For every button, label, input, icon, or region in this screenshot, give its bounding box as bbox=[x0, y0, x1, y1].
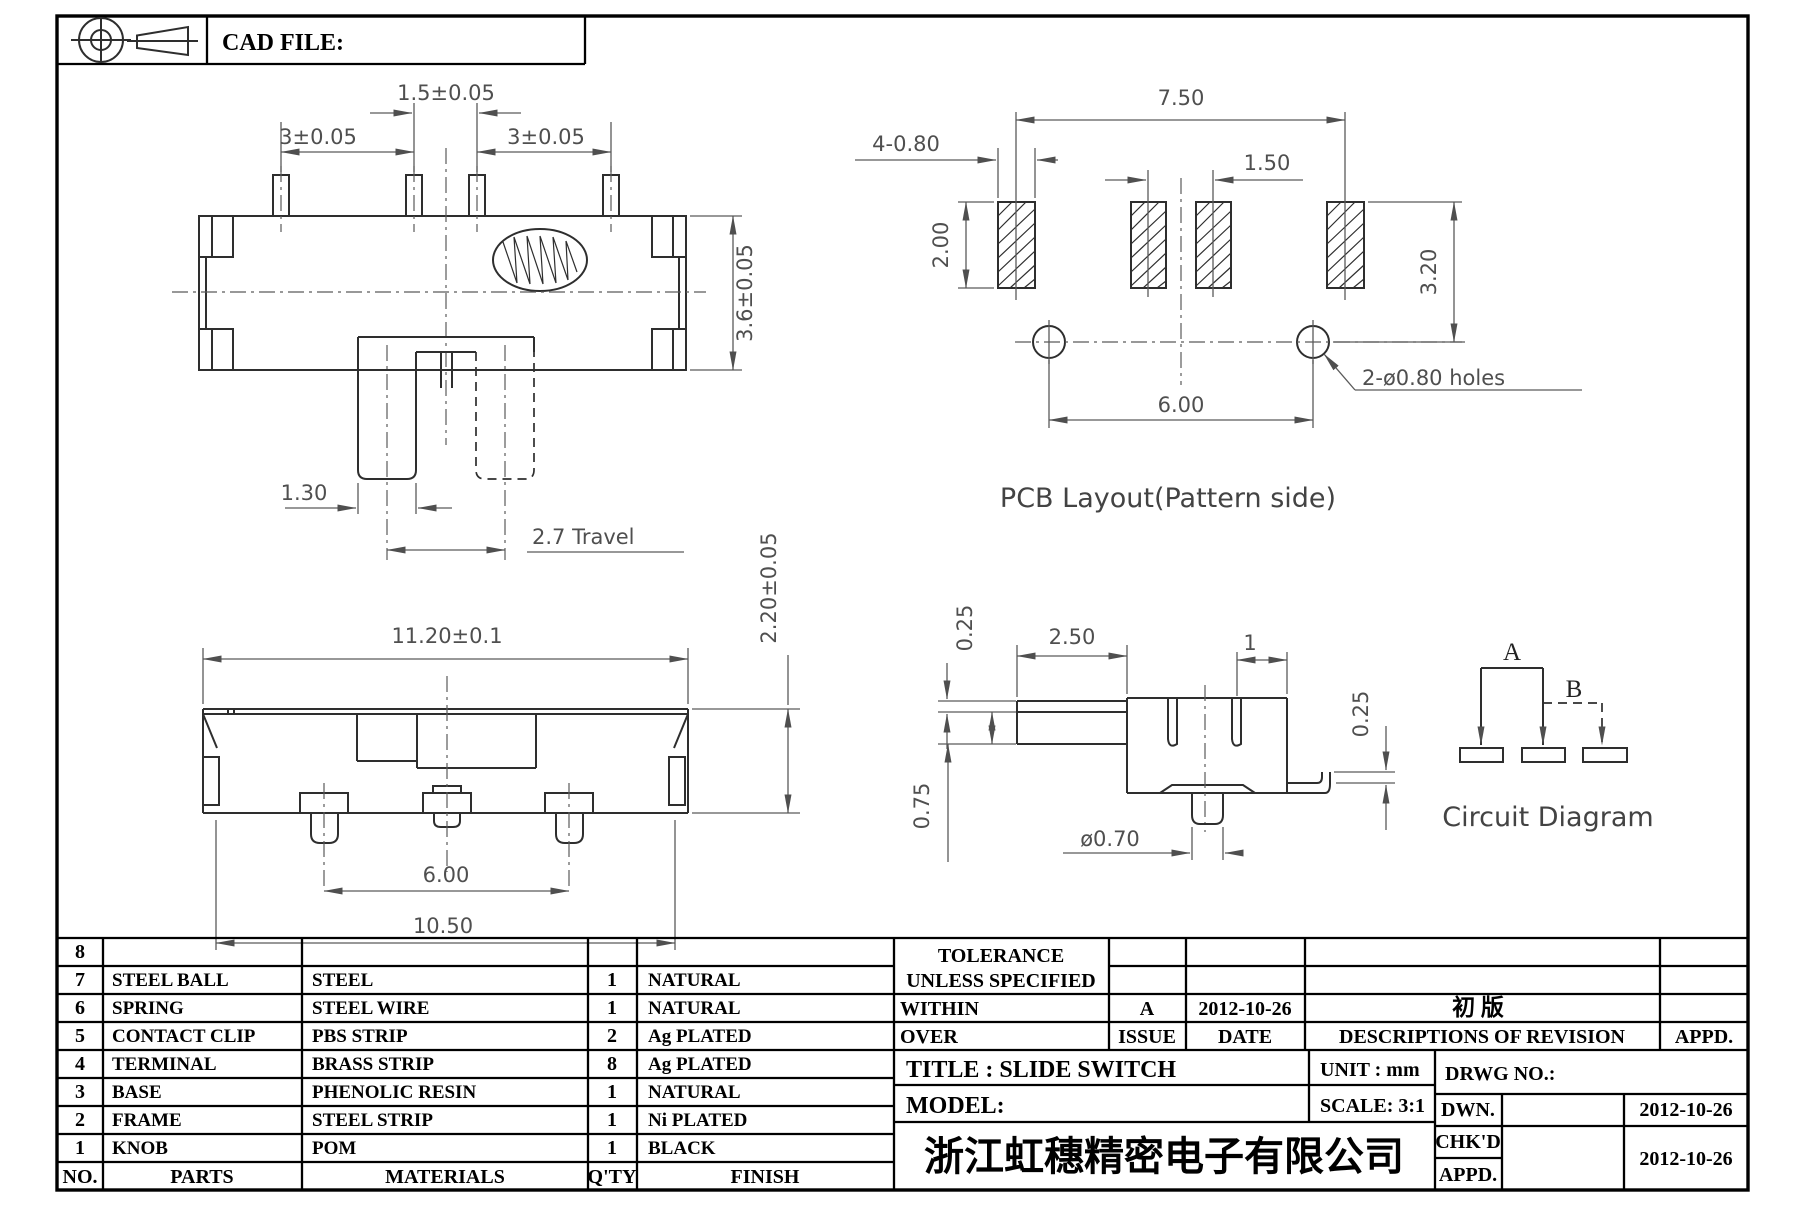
part-material: STEEL WIRE bbox=[312, 998, 429, 1019]
front-view: 11.20±0.1 6.00 10.50 2.20±0.05 bbox=[203, 532, 800, 950]
dim-base-width: 10.50 bbox=[413, 914, 473, 938]
circuit-diagram: A B Circuit Diagram bbox=[1442, 639, 1653, 833]
dim-pin-diameter: ø0.70 bbox=[1080, 827, 1140, 851]
part-name: TERMINAL bbox=[112, 1054, 217, 1075]
dim-holes-note: 2-ø0.80 holes bbox=[1362, 366, 1505, 390]
appd2-label: APPD. bbox=[1439, 1164, 1497, 1186]
part-qty: 1 bbox=[607, 1109, 617, 1131]
dim-pad-height: 2.00 bbox=[929, 222, 953, 269]
part-name: STEEL BALL bbox=[112, 970, 229, 991]
part-finish: NATURAL bbox=[648, 998, 741, 1019]
dim-arm-length: 2.50 bbox=[1049, 625, 1096, 649]
pcb-dimensions: 7.50 1.50 4-0.80 2.00 3.20 6.00 bbox=[855, 86, 1582, 428]
dim-tip-height: 0.25 bbox=[1349, 691, 1373, 738]
model-label: MODEL: bbox=[906, 1093, 1005, 1119]
dim-body-height: 3.6±0.05 bbox=[733, 244, 757, 342]
dim-arm-height: 0.75 bbox=[910, 783, 934, 830]
chkd-label: CHK'D bbox=[1435, 1131, 1501, 1153]
part-qty: 1 bbox=[607, 1081, 617, 1103]
date-label: DATE bbox=[1218, 1026, 1272, 1048]
part-qty: 1 bbox=[607, 1137, 617, 1159]
part-material: PHENOLIC RESIN bbox=[312, 1082, 476, 1103]
side-detail-dimensions: 0.25 0.75 2.50 1 0.25 ø0.70 bbox=[910, 605, 1395, 862]
pcb-view-title: PCB Layout(Pattern side) bbox=[1000, 483, 1336, 514]
over-label: OVER bbox=[900, 1026, 958, 1048]
dim-slot-offset: 1 bbox=[1243, 631, 1256, 655]
part-no: 6 bbox=[75, 997, 85, 1019]
part-qty: 1 bbox=[607, 997, 617, 1019]
drawing-sheet: CAD FILE: bbox=[0, 0, 1811, 1207]
part-name: FRAME bbox=[112, 1110, 182, 1131]
part-finish: Ni PLATED bbox=[648, 1110, 747, 1131]
part-material: BRASS STRIP bbox=[312, 1054, 434, 1075]
drawing-title: TITLE : SLIDE SWITCH bbox=[906, 1057, 1176, 1083]
dim-pin-pitch-right: 3±0.05 bbox=[507, 125, 585, 149]
dim-travel: 2.7 Travel bbox=[532, 525, 635, 549]
dim-front-height: 2.20±0.05 bbox=[757, 532, 781, 643]
part-finish: Ag PLATED bbox=[648, 1054, 752, 1075]
part-finish: BLACK bbox=[648, 1138, 716, 1159]
spring-symbol bbox=[493, 229, 587, 291]
part-material: STEEL bbox=[312, 970, 373, 991]
dim-knob-width: 1.30 bbox=[281, 481, 328, 505]
part-material: PBS STRIP bbox=[312, 1026, 408, 1047]
dim-pin-pitch-center: 1.5±0.05 bbox=[397, 81, 495, 105]
issue-value: A bbox=[1140, 998, 1155, 1020]
front-view-dimensions: 11.20±0.1 6.00 10.50 2.20±0.05 bbox=[203, 532, 800, 950]
header-qty: Q'TY bbox=[588, 1166, 637, 1188]
part-qty: 1 bbox=[607, 969, 617, 991]
chk-date: 2012-10-26 bbox=[1639, 1148, 1732, 1170]
header-finish: FINISH bbox=[731, 1166, 800, 1188]
dim-pad-span: 7.50 bbox=[1158, 86, 1205, 110]
unit-label: UNIT : mm bbox=[1320, 1059, 1420, 1081]
company-name: 浙江虹穗精密电子有限公司 bbox=[924, 1135, 1404, 1179]
part-name: SPRING bbox=[112, 998, 184, 1019]
parts-table: 8 7 STEEL BALL STEEL 1 NATURAL 6 SPRING … bbox=[63, 941, 800, 1188]
dwn-date: 2012-10-26 bbox=[1639, 1099, 1732, 1121]
part-qty: 2 bbox=[607, 1025, 617, 1047]
issue-label: ISSUE bbox=[1118, 1026, 1176, 1048]
scale-label: SCALE: 3:1 bbox=[1320, 1095, 1425, 1117]
dim-terminal-pitch: 6.00 bbox=[423, 863, 470, 887]
drwg-no-label: DRWG NO.: bbox=[1445, 1063, 1555, 1085]
part-name: CONTACT CLIP bbox=[112, 1026, 256, 1047]
title-block: TOLERANCE UNLESS SPECIFIED WITHIN OVER A… bbox=[900, 945, 1733, 1186]
dim-pin-pitch-left: 3±0.05 bbox=[279, 125, 357, 149]
part-finish: NATURAL bbox=[648, 1082, 741, 1103]
dim-plate-thickness: 0.25 bbox=[953, 605, 977, 652]
header-materials: MATERIALS bbox=[385, 1166, 505, 1188]
drawing-canvas: CAD FILE: bbox=[0, 0, 1811, 1207]
part-no: 4 bbox=[75, 1053, 85, 1075]
part-no: 2 bbox=[75, 1109, 85, 1131]
revision-value: 初 版 bbox=[1452, 994, 1504, 1020]
part-no: 3 bbox=[75, 1081, 85, 1103]
part-no: 8 bbox=[75, 941, 85, 963]
header-parts: PARTS bbox=[170, 1166, 233, 1188]
tolerance-line1: TOLERANCE bbox=[938, 945, 1064, 967]
part-material: STEEL STRIP bbox=[312, 1110, 433, 1131]
circuit-pos-b: B bbox=[1566, 676, 1583, 703]
descriptions-label: DESCRIPTIONS OF REVISION bbox=[1339, 1026, 1626, 1048]
part-finish: NATURAL bbox=[648, 970, 741, 991]
within-label: WITHIN bbox=[900, 998, 979, 1020]
circuit-title: Circuit Diagram bbox=[1442, 802, 1653, 833]
header-no: NO. bbox=[63, 1166, 98, 1188]
part-no: 7 bbox=[75, 969, 85, 991]
part-no: 1 bbox=[75, 1137, 85, 1159]
dim-overall-width: 11.20±0.1 bbox=[391, 624, 502, 648]
dim-hole-span: 6.00 bbox=[1158, 393, 1205, 417]
part-no: 5 bbox=[75, 1025, 85, 1047]
pcb-layout-view: 7.50 1.50 4-0.80 2.00 3.20 6.00 bbox=[855, 86, 1582, 514]
dim-hole-offset: 3.20 bbox=[1417, 249, 1441, 296]
tolerance-line2: UNLESS SPECIFIED bbox=[906, 970, 1096, 992]
dim-pad-pitch: 1.50 bbox=[1244, 151, 1291, 175]
side-detail-view: 0.25 0.75 2.50 1 0.25 ø0.70 bbox=[910, 605, 1395, 862]
part-material: POM bbox=[312, 1138, 356, 1159]
part-qty: 8 bbox=[607, 1053, 617, 1075]
appd-label: APPD. bbox=[1675, 1026, 1733, 1048]
dim-pad-width: 4-0.80 bbox=[872, 132, 940, 156]
top-view: 1.5±0.05 3±0.05 3±0.05 3.6±0.05 1.30 2.7… bbox=[172, 81, 757, 560]
cad-file-box: CAD FILE: bbox=[57, 16, 585, 64]
third-angle-projection-icon bbox=[71, 18, 198, 62]
date-value: 2012-10-26 bbox=[1198, 998, 1291, 1020]
dwn-label: DWN. bbox=[1441, 1099, 1495, 1121]
part-name: BASE bbox=[112, 1082, 162, 1103]
cad-file-label: CAD FILE: bbox=[222, 30, 344, 56]
part-name: KNOB bbox=[112, 1138, 168, 1159]
circuit-pos-a: A bbox=[1503, 639, 1521, 666]
part-finish: Ag PLATED bbox=[648, 1026, 752, 1047]
